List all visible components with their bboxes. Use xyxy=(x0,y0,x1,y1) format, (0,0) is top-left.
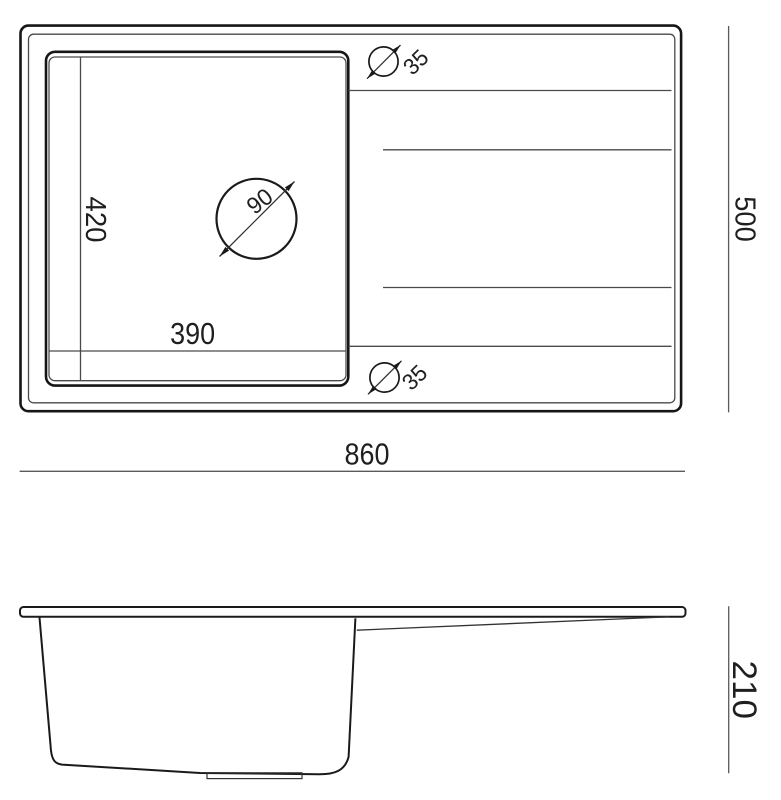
svg-text:90: 90 xyxy=(242,183,278,219)
svg-text:860: 860 xyxy=(345,437,390,472)
svg-text:390: 390 xyxy=(170,316,215,351)
svg-text:420: 420 xyxy=(79,197,111,243)
svg-text:35: 35 xyxy=(398,44,434,80)
svg-text:500: 500 xyxy=(729,196,761,242)
svg-text:35: 35 xyxy=(397,359,433,395)
svg-text:210: 210 xyxy=(725,661,763,720)
